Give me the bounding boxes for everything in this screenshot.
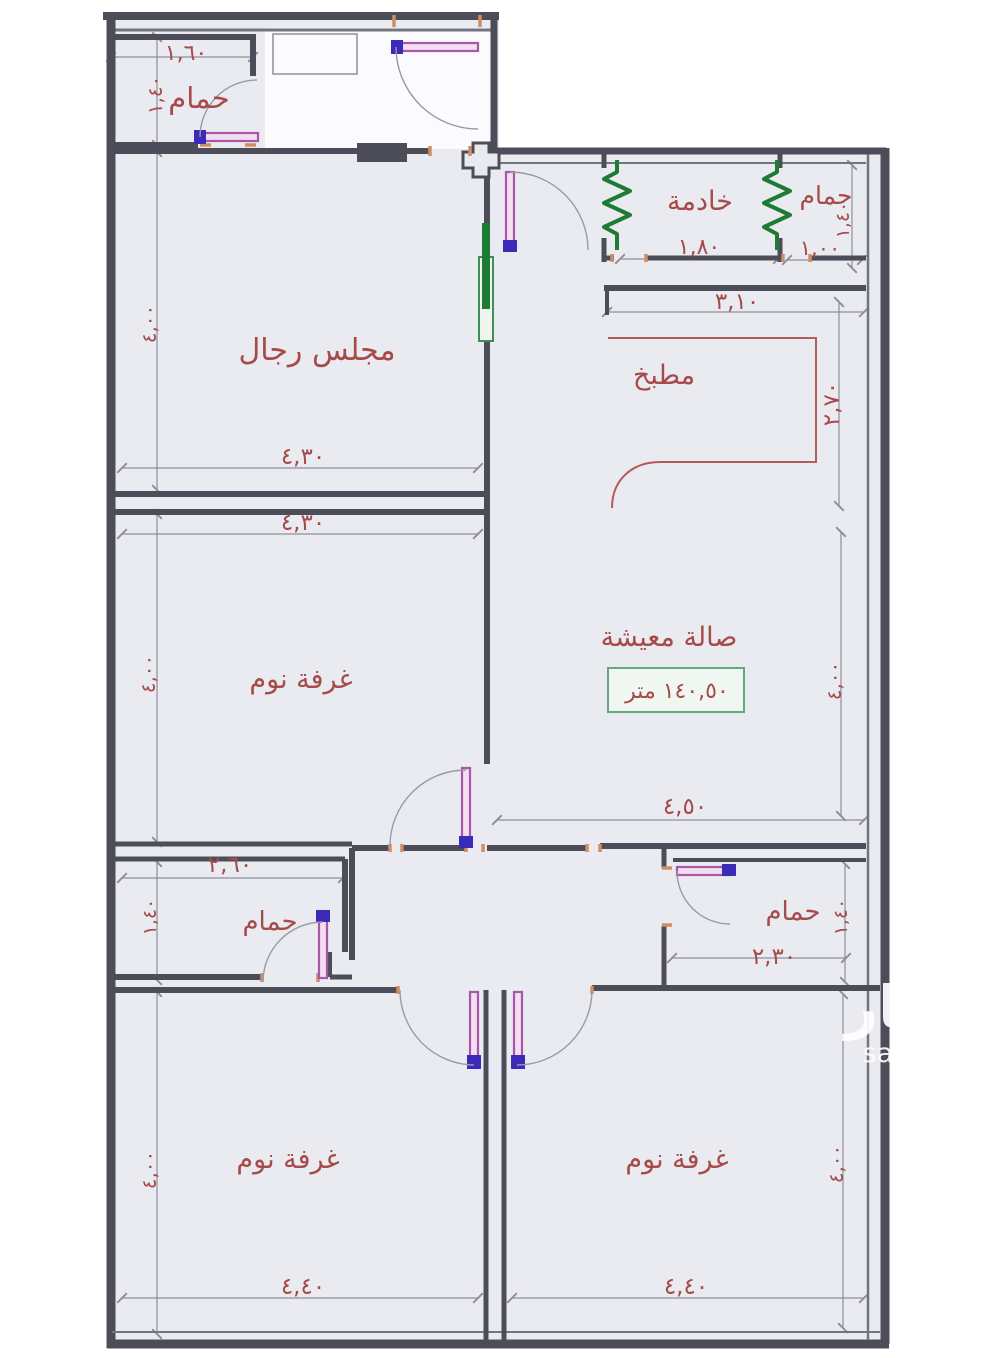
door-leaf-bath-middle-left	[319, 920, 327, 978]
dim-bath-tr-height: ١,٤٠	[832, 202, 854, 239]
dim-bedroom-br-width: ٤,٤٠	[664, 1274, 708, 1300]
dim-majlis-height: ٤,٠٠	[137, 305, 161, 344]
shaft-bar	[482, 223, 490, 309]
room-label-majlis: مجلس رجال	[238, 333, 395, 368]
room-label-bedroom-bottom-left: غرفة نوم	[236, 1144, 339, 1175]
room-label-living-hall: صالة معيشة	[601, 622, 738, 653]
dim-kitchen-width: ٣,١٠	[715, 289, 759, 315]
door-leaf-bedroom-middle	[462, 768, 470, 846]
dim-bath-mr-height: ١,٤٠	[830, 899, 852, 936]
door-leaf-entrance	[396, 43, 478, 51]
dim-bedroom-br-height: ٤,٠٠	[824, 1145, 848, 1184]
door-hinge-bedroom-bottom-left	[467, 1055, 481, 1069]
dim-bath-tl-height: ١,٤٠	[143, 76, 167, 115]
dim-kitchen-height: ٢,٧٠	[819, 382, 845, 426]
dim-bath-ml-width: ٢,٦٠	[208, 852, 252, 878]
dim-living-height: ٤,٠٠	[822, 662, 846, 701]
room-label-bath-middle-right: حمام	[765, 897, 820, 927]
floor-plan-svg: حمام ١,٦٠ ١,٤٠ خادمة ١,٨٠ حمام ١,٠٠ ١,٤٠…	[0, 0, 1000, 1358]
dim-bedroom-ml-width: ٤,٣٠	[281, 510, 325, 536]
floor-fills	[107, 12, 889, 1348]
room-label-bath-middle-left: حمام	[242, 907, 297, 937]
dim-bedroom-bl-height: ٤,٠٠	[137, 1151, 161, 1190]
door-hinge-bath-middle-right	[722, 864, 736, 876]
dim-bath-mr-width: ٢,٣٠	[752, 944, 796, 970]
dim-majlis-width: ٤,٣٠	[281, 444, 325, 470]
room-label-bedroom-middle-left: غرفة نوم	[249, 664, 352, 695]
door-hinge-entrance	[391, 40, 403, 54]
dim-living-width: ٤,٥٠	[663, 794, 707, 820]
dim-bath-ml-height: ١,٤٠	[139, 899, 161, 936]
room-label-bedroom-bottom-right: غرفة نوم	[625, 1144, 728, 1175]
door-leaf-bath-top-left	[198, 133, 258, 141]
dim-bath-tl-width: ١,٦٠	[165, 41, 207, 66]
dim-bedroom-ml-height: ٤,٠٠	[136, 655, 160, 694]
door-hinge-bedroom-middle	[459, 836, 473, 848]
dim-bath-tr-width: ١,٠٠	[800, 236, 841, 260]
floor-plan-page: حمام ١,٦٠ ١,٤٠ خادمة ١,٨٠ حمام ١,٠٠ ١,٤٠…	[0, 0, 1000, 1358]
door-hinge-bath-middle-left	[316, 910, 330, 922]
area-box-text: ١٤٠,٥٠ متر	[624, 679, 729, 704]
door-hinge-living	[503, 240, 517, 252]
room-label-bath-top-left: حمام	[168, 81, 229, 115]
dim-maid-width: ١,٨٠	[678, 235, 720, 260]
door-hinge-bedroom-bottom-right	[511, 1055, 525, 1069]
door-leaf-living	[506, 172, 514, 250]
room-label-kitchen: مطبخ	[633, 360, 695, 391]
room-label-maid: خادمة	[667, 186, 733, 217]
dim-bedroom-bl-width: ٤,٤٠	[281, 1274, 325, 1300]
